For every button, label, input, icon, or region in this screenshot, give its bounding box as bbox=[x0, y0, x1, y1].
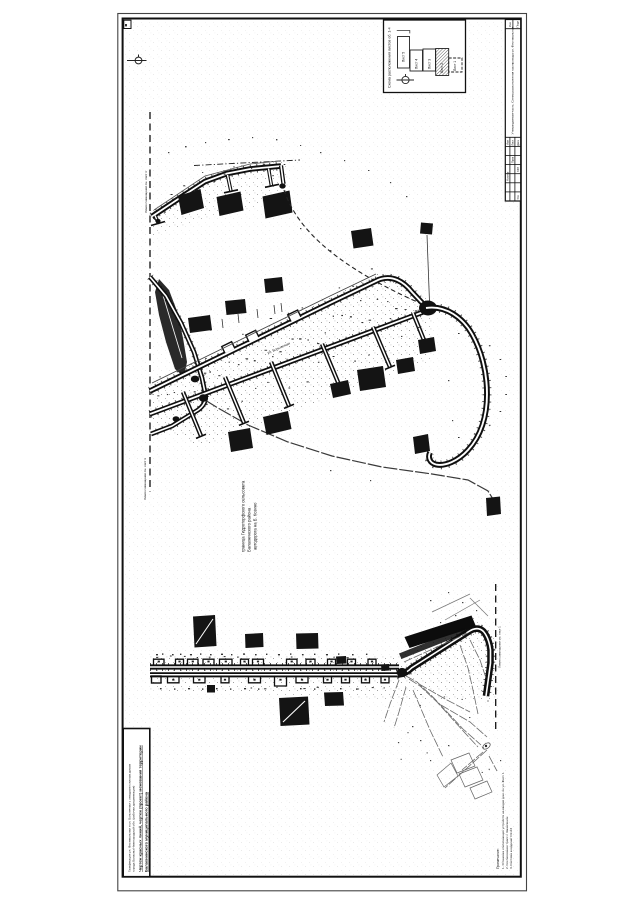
svg-text:Лист 4: Лист 4 bbox=[415, 59, 419, 69]
svg-text:Лист 3: Лист 3 bbox=[428, 59, 432, 69]
svg-text:Примечание:: Примечание: bbox=[496, 848, 500, 869]
svg-text:города Балахны Нижегородской о: города Балахны Нижегородской обл. (рабоч… bbox=[132, 786, 136, 872]
svg-text:Линия совмещения см. лист 3: Линия совмещения см. лист 3 bbox=[143, 458, 147, 500]
svg-text:Изм: Изм bbox=[506, 140, 510, 145]
svg-text:Линия совмещения см. лист 1: Линия совмещения см. лист 1 bbox=[498, 626, 502, 668]
svg-text:граница Гидроторфского сельсов: граница Гидроторфского сельсовета bbox=[241, 480, 246, 552]
svg-text:Утверждаемая часть. Схема расп: Утверждаемая часть. Схема расположения г… bbox=[511, 26, 515, 134]
svg-text:Утв: Утв bbox=[516, 195, 520, 200]
svg-text:3. Система координат СК-63: 3. Система координат СК-63 bbox=[509, 828, 513, 869]
svg-text:Дата: Дата bbox=[516, 140, 520, 146]
svg-text:ГИП: ГИП bbox=[516, 167, 520, 172]
svg-text:Лист: Лист bbox=[511, 139, 515, 145]
svg-text:Подп: Подп bbox=[516, 20, 520, 27]
svg-text:Лист 2: Лист 2 bbox=[440, 63, 444, 73]
svg-text:Пров: Пров bbox=[511, 156, 515, 163]
svg-text:Лист 5: Лист 5 bbox=[402, 52, 406, 62]
svg-text:Балахнинского муниципального р: Балахнинского муниципального района bbox=[144, 791, 149, 872]
svg-text:Схема расположения листов об.: Схема расположения листов об. 1-4 bbox=[388, 27, 392, 88]
svg-text:Балахнинского района: Балахнинского района bbox=[247, 507, 252, 552]
svg-text:автодорога на Б. Козино: автодорога на Б. Козино bbox=[253, 502, 258, 550]
svg-text:Инв: Инв bbox=[508, 22, 512, 28]
svg-text:Лист 1: Лист 1 bbox=[453, 61, 457, 71]
svg-text:Н.контр: Н.контр bbox=[506, 171, 510, 181]
svg-text:Линия совмещения см. лист 3: Линия совмещения см. лист 3 bbox=[144, 171, 148, 213]
svg-text:Чертеж красных линий, чертеж (: Чертеж красных линий, чертеж (проект) ме… bbox=[138, 745, 143, 872]
